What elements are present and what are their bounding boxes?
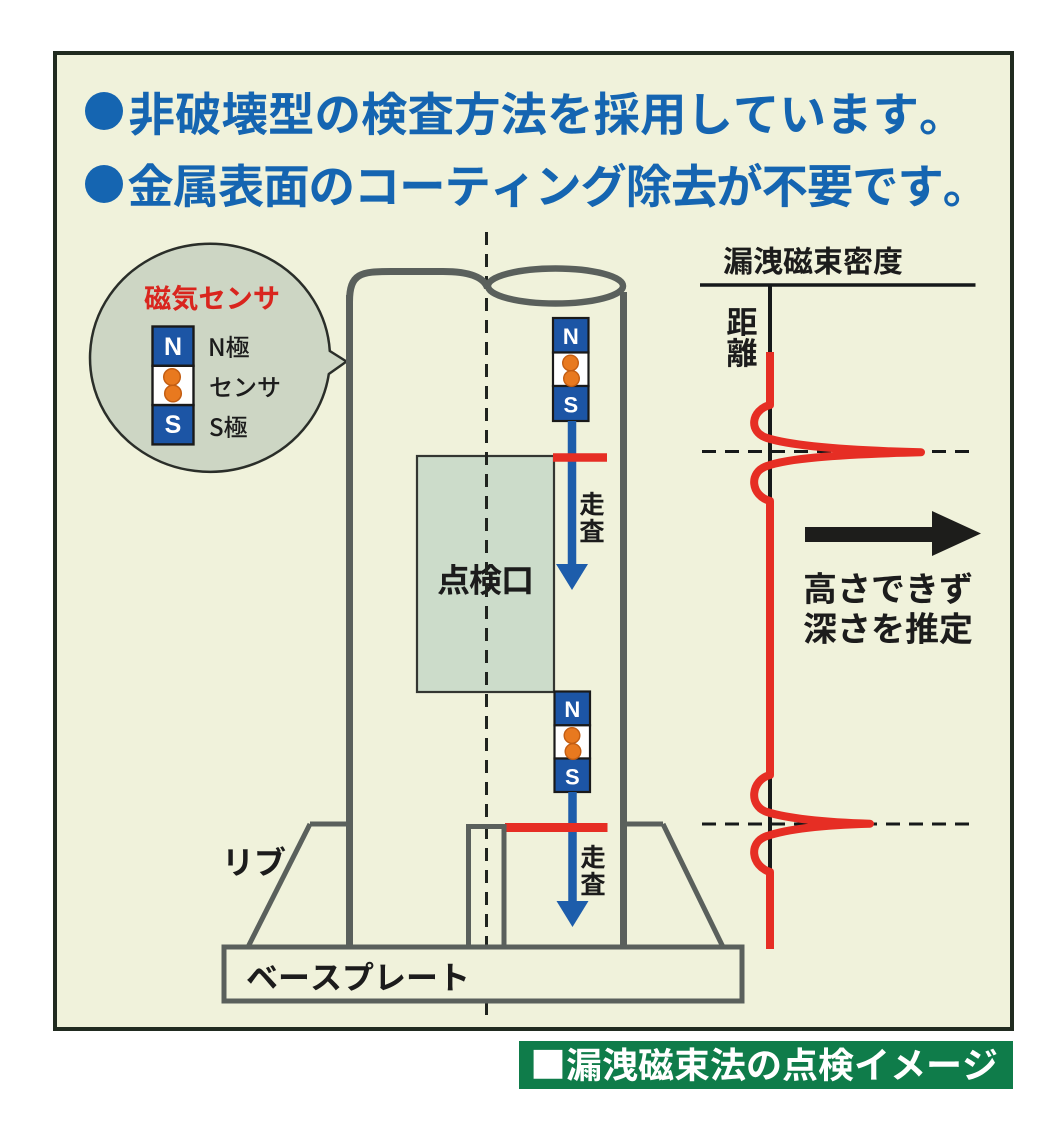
svg-text:S: S <box>565 765 580 790</box>
svg-text:N: N <box>563 324 579 349</box>
svg-text:N: N <box>564 697 580 722</box>
svg-text:S: S <box>563 393 578 418</box>
svg-text:S: S <box>165 411 182 439</box>
svg-text:N: N <box>164 333 182 361</box>
